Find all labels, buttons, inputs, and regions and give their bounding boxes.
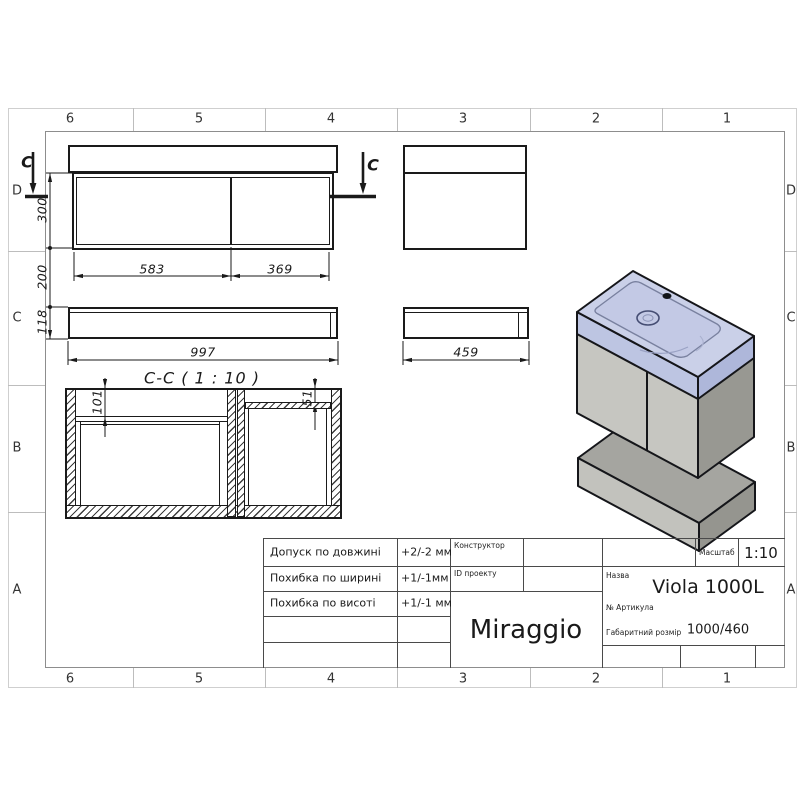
section-inner-wall-line bbox=[248, 409, 249, 506]
dim-shelf-height: 118 bbox=[35, 309, 50, 334]
zone-tick bbox=[397, 108, 398, 131]
section-inner-wall-line bbox=[219, 421, 220, 506]
section-hatched-mid-wall bbox=[227, 389, 236, 517]
zone-col-label: 5 bbox=[195, 112, 203, 127]
front-view-door-divider bbox=[230, 177, 232, 245]
zone-col-label: 1 bbox=[723, 672, 731, 687]
zone-col-label: 5 bbox=[195, 672, 203, 687]
zone-row-label: A bbox=[13, 583, 22, 598]
zone-tick bbox=[8, 512, 45, 513]
zone-col-label: 2 bbox=[592, 112, 600, 127]
title-block-line bbox=[397, 538, 398, 668]
zone-tick bbox=[8, 385, 45, 386]
zone-col-label: 6 bbox=[66, 672, 74, 687]
dim-door-left-width: 583 bbox=[139, 262, 164, 277]
zone-col-label: 1 bbox=[723, 112, 731, 127]
zone-row-label: C bbox=[786, 311, 795, 326]
dim-section-left-inset: 101 bbox=[90, 389, 105, 414]
product-name: Viola 1000L bbox=[652, 576, 763, 598]
zone-tick bbox=[785, 385, 797, 386]
title-block-line bbox=[263, 538, 264, 668]
tolerance-width-label: Похибка по ширині bbox=[270, 572, 381, 585]
zone-tick bbox=[265, 108, 266, 131]
zone-tick bbox=[662, 668, 663, 688]
zone-tick bbox=[530, 668, 531, 688]
title-block-line bbox=[263, 538, 785, 539]
section-hatched-mid-wall bbox=[237, 389, 246, 517]
zone-col-label: 4 bbox=[327, 112, 335, 127]
section-title: C-C ( 1 : 10 ) bbox=[144, 369, 260, 388]
title-block-line bbox=[523, 538, 524, 591]
tolerance-height-label: Похибка по висоті bbox=[270, 597, 376, 610]
zone-tick bbox=[785, 251, 797, 252]
zone-tick bbox=[785, 512, 797, 513]
zone-tick bbox=[662, 108, 663, 131]
section-hatched-right-wall bbox=[331, 389, 341, 517]
side-view bbox=[403, 145, 527, 250]
zone-tick bbox=[133, 108, 134, 131]
zone-row-label: B bbox=[787, 441, 796, 456]
title-block-line bbox=[263, 642, 450, 643]
shelf-side-edge-line bbox=[518, 312, 519, 338]
project-id-label: ID проекту bbox=[454, 569, 497, 578]
title-block-line bbox=[738, 538, 739, 566]
shelf-front-edge-line bbox=[330, 312, 331, 338]
scale-label: Масштаб bbox=[699, 548, 735, 557]
zone-tick bbox=[265, 668, 266, 688]
section-left-shelf-line bbox=[76, 421, 227, 422]
title-block-line bbox=[680, 645, 681, 668]
dim-cabinet-height: 300 bbox=[35, 197, 50, 222]
drawing-sheet: 6 5 4 3 2 1 6 5 4 3 2 1 D C B A D C B A bbox=[0, 0, 800, 800]
title-block-line bbox=[602, 645, 785, 646]
zone-row-label: D bbox=[786, 184, 796, 199]
section-left-shelf-line bbox=[76, 416, 227, 417]
scale-value: 1:10 bbox=[744, 544, 778, 562]
overall-size-label: Габаритний розмір bbox=[606, 628, 681, 637]
zone-col-label: 3 bbox=[459, 672, 467, 687]
dim-cabinet-depth: 459 bbox=[453, 345, 478, 360]
title-block-line bbox=[602, 538, 603, 668]
tolerance-length-value: +2/-2 мм bbox=[401, 546, 452, 559]
zone-row-label: C bbox=[12, 311, 21, 326]
dim-section-right-inset: 51 bbox=[300, 390, 315, 407]
section-hatched-bottom bbox=[66, 505, 341, 518]
section-hatched-shelf bbox=[245, 402, 331, 409]
dim-door-right-width: 369 bbox=[267, 262, 292, 277]
front-view-sink-top bbox=[68, 145, 338, 173]
zone-col-label: 4 bbox=[327, 672, 335, 687]
front-view-doors bbox=[76, 177, 330, 245]
dim-wall-gap: 200 bbox=[35, 264, 50, 289]
designer-label: Конструктор bbox=[454, 541, 505, 550]
zone-tick bbox=[133, 668, 134, 688]
brand-logo-text: Miraggio bbox=[470, 615, 582, 645]
article-label: № Артикула bbox=[606, 603, 654, 612]
shelf-side-edge-line bbox=[405, 312, 527, 313]
title-block-line bbox=[263, 566, 785, 567]
title-block-line bbox=[755, 645, 756, 668]
title-block-line bbox=[263, 616, 450, 617]
tolerance-length-label: Допуск по довжині bbox=[270, 546, 381, 559]
zone-col-label: 6 bbox=[66, 112, 74, 127]
section-inner-wall-line bbox=[326, 409, 327, 506]
cut-mark-letter: C bbox=[21, 153, 33, 172]
shelf-front-edge-line bbox=[70, 312, 336, 313]
zone-tick bbox=[8, 251, 45, 252]
section-drawer-top-line bbox=[80, 424, 220, 425]
tolerance-height-value: +1/-1 мм bbox=[401, 597, 452, 610]
dim-cabinet-width: 997 bbox=[190, 345, 215, 360]
section-hatched-left-wall bbox=[66, 389, 76, 517]
zone-col-label: 3 bbox=[459, 112, 467, 127]
overall-size-value: 1000/460 bbox=[687, 623, 749, 638]
zone-row-label: B bbox=[13, 441, 22, 456]
name-label: Назва bbox=[606, 571, 629, 580]
zone-col-label: 2 bbox=[592, 672, 600, 687]
zone-row-label: A bbox=[787, 583, 796, 598]
zone-tick bbox=[530, 108, 531, 131]
zone-row-label: D bbox=[12, 184, 22, 199]
section-inner-wall-line bbox=[80, 421, 81, 506]
zone-tick bbox=[397, 668, 398, 688]
title-block-line bbox=[695, 538, 696, 566]
side-view-top-band-line bbox=[404, 172, 526, 174]
tolerance-width-value: +1/-1мм bbox=[401, 572, 449, 585]
title-block-line bbox=[263, 591, 602, 592]
cut-mark-letter: C bbox=[367, 156, 379, 175]
